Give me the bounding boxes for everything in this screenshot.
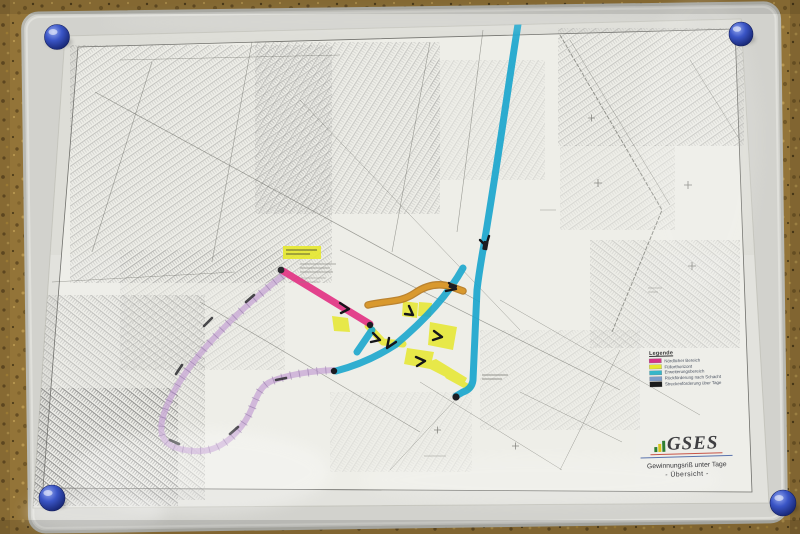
legend-label: Nördlicher Bereich: [664, 358, 700, 364]
legend-swatch: [650, 382, 662, 387]
legend-swatch: [649, 359, 661, 364]
legend-swatch: [650, 376, 662, 381]
shaft-symbol: [278, 267, 285, 274]
highlight-area: [332, 316, 350, 332]
gses-logo: GSES: [622, 434, 750, 453]
legend-items: Nördlicher BereichFüllorthorizontErweite…: [649, 356, 745, 388]
photo-of-mining-map: Legende Nördlicher BereichFüllorthorizon…: [0, 0, 800, 534]
map-legend: Legende Nördlicher BereichFüllorthorizon…: [649, 348, 745, 387]
legend-swatch: [650, 371, 662, 376]
gses-logo-text: GSES: [667, 435, 719, 451]
gses-logo-icon: [654, 441, 665, 452]
legend-label: Streckenförderung über Tage: [664, 380, 721, 386]
map-title-block: GSES Gewinnungsriß unter Tage - Übersich…: [622, 434, 751, 479]
legend-swatch: [649, 365, 661, 370]
